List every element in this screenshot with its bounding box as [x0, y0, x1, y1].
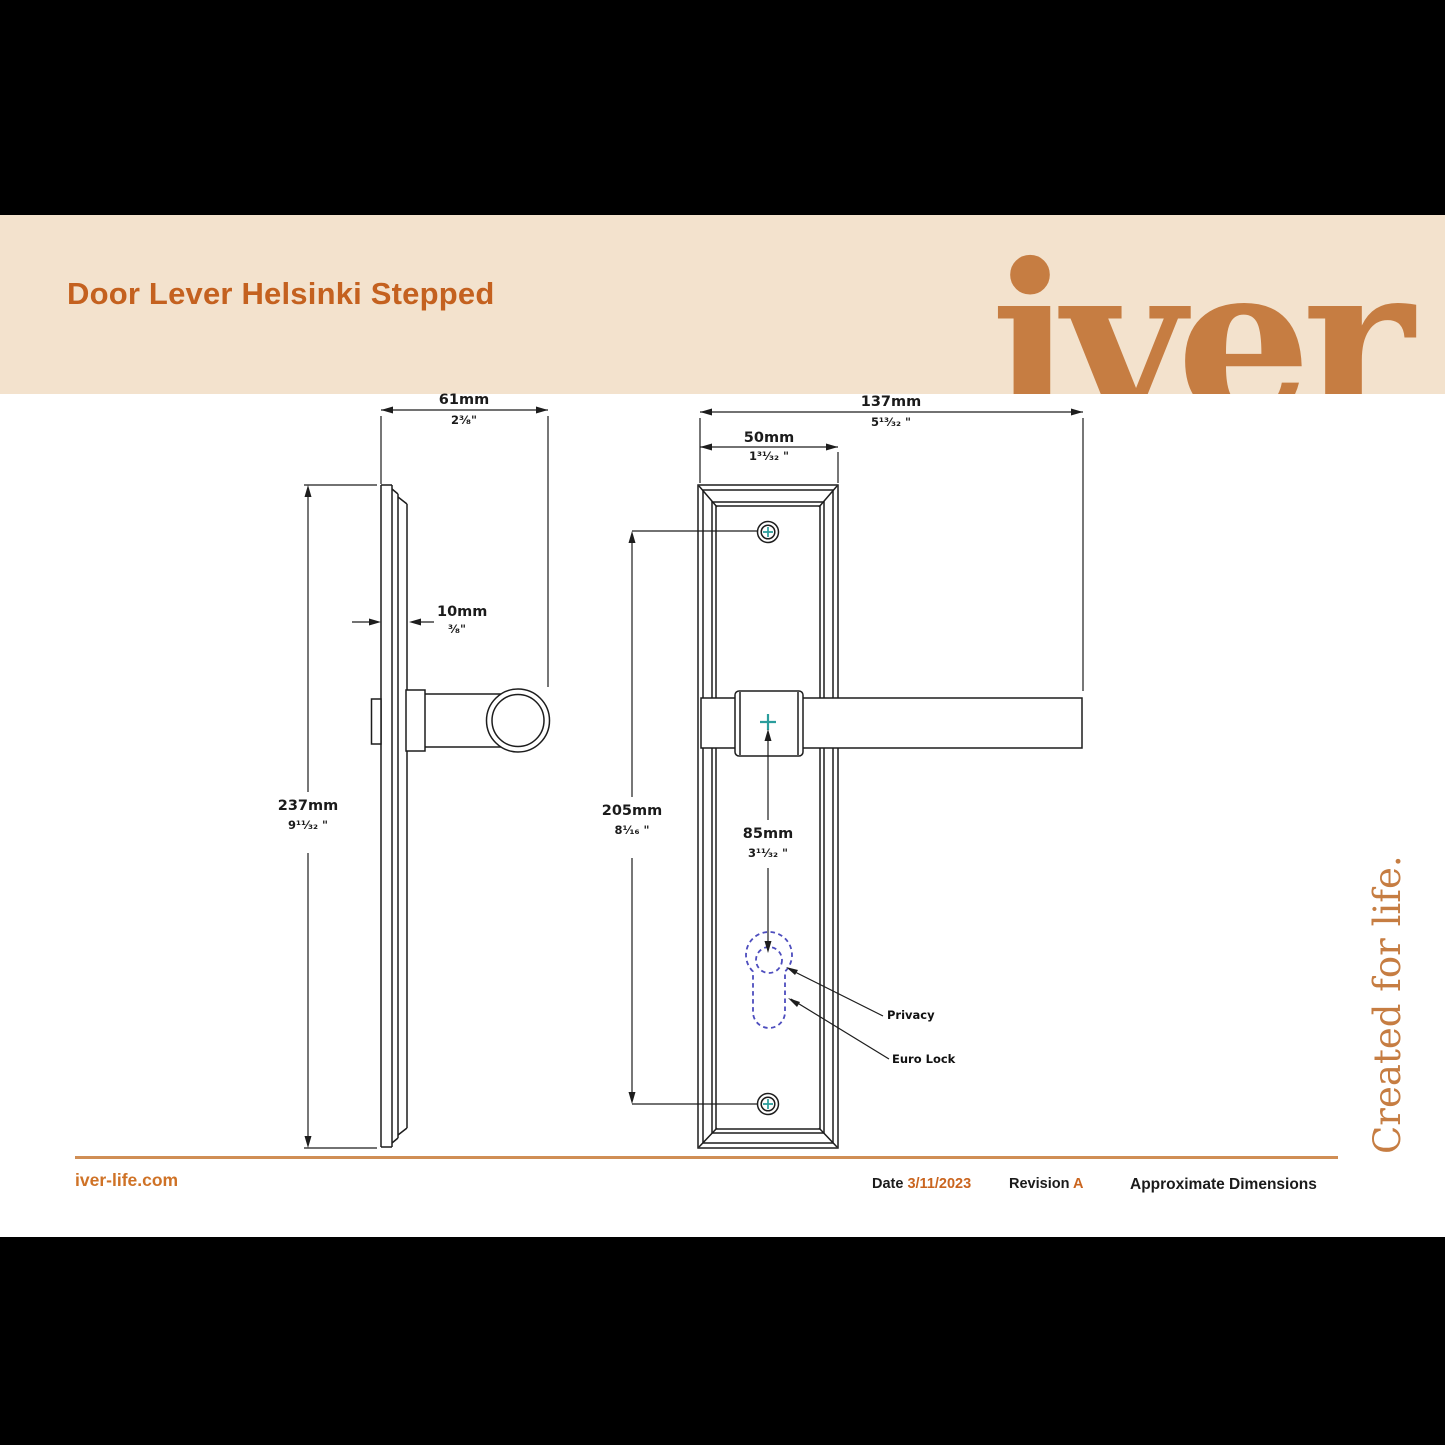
- front-view-drawing: [698, 485, 1082, 1148]
- dim-237mm: 237mm: [275, 798, 342, 815]
- dim-50mm: 50mm: [744, 430, 794, 447]
- revision-value: A: [1073, 1176, 1083, 1192]
- dim-85mm: 85mm: [740, 826, 796, 843]
- dim-237mm-inch: 9¹¹⁄₃₂ ": [285, 819, 331, 832]
- euro-lock-label: Euro Lock: [892, 1052, 955, 1066]
- dim-61mm: 61mm: [439, 392, 489, 409]
- date-field: Date 3/11/2023: [872, 1176, 971, 1192]
- privacy-hole: [756, 947, 782, 973]
- dim-205mm-inch: 8¹⁄₁₆ ": [611, 824, 652, 837]
- date-value: 3/11/2023: [907, 1176, 971, 1192]
- dim-85mm-inch: 3¹¹⁄₃₂ ": [745, 847, 791, 860]
- footer-rule: [75, 1156, 1338, 1159]
- revision-label: Revision: [1009, 1176, 1069, 1192]
- screw-bottom: [758, 1094, 779, 1115]
- dim-61mm-inch: 2³⁄₈": [451, 414, 477, 427]
- euro-lock-leader: [791, 999, 889, 1059]
- side-view-drawing: [372, 485, 550, 1147]
- tagline: Created for life.: [1366, 855, 1409, 1154]
- dimensions-note: Approximate Dimensions: [1130, 1176, 1317, 1194]
- dim-137mm: 137mm: [861, 394, 922, 411]
- technical-drawing: [0, 0, 1445, 1445]
- screw-top: [758, 522, 779, 543]
- dim-10mm-inch: ³⁄₈": [448, 623, 466, 636]
- dim-10mm: 10mm: [437, 604, 487, 621]
- privacy-label: Privacy: [887, 1008, 935, 1022]
- dimension-lines: [304, 410, 1083, 1148]
- dim-50mm-inch: 1³¹⁄₃₂ ": [749, 450, 789, 463]
- date-label: Date: [872, 1176, 903, 1192]
- dim-205mm: 205mm: [599, 803, 666, 820]
- dim-137mm-inch: 5¹³⁄₃₂ ": [871, 416, 911, 429]
- privacy-leader: [789, 969, 883, 1016]
- website-link[interactable]: iver-life.com: [75, 1170, 178, 1191]
- lever-bar: [701, 691, 1082, 756]
- dimension-arrowheads: [305, 407, 1084, 1149]
- revision-field: Revision A: [1009, 1176, 1083, 1192]
- spec-sheet: iver Door Lever Helsinki Stepped: [0, 0, 1445, 1445]
